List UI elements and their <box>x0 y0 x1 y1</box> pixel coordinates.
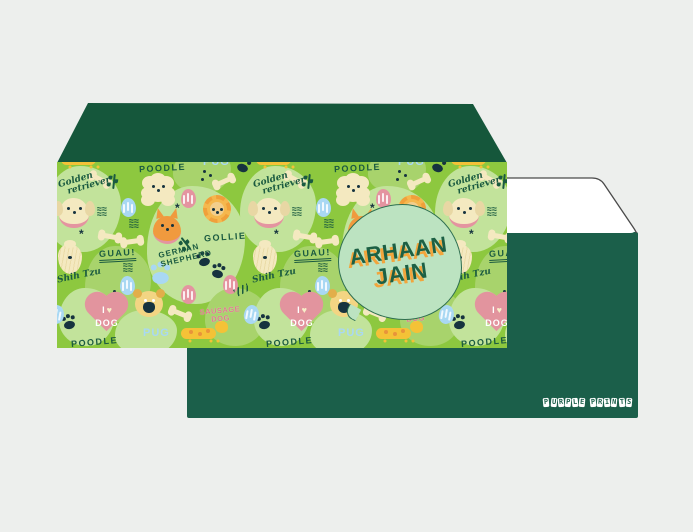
pattern-label-line: GUAU! <box>294 247 332 263</box>
pattern-paw <box>152 272 169 284</box>
brand-word: PURPLE <box>543 398 585 407</box>
name-line-2: JAIN <box>374 259 429 288</box>
pattern-heart: I♥DOG <box>86 293 128 331</box>
i-love-dog-label: I♥DOG <box>476 293 507 328</box>
dog-pug-face <box>144 299 147 302</box>
pattern-guau-guau: GUAU! <box>99 247 137 263</box>
front-envelope-flap <box>57 103 507 163</box>
dog-pug-face <box>339 299 342 302</box>
brand-letter-tile: U <box>550 398 557 408</box>
pattern-dog-poodle <box>340 178 366 202</box>
pattern-guau-guau: GUAU! <box>294 247 332 263</box>
brand-letter-tile: N <box>611 398 618 408</box>
pattern-waves <box>292 207 302 218</box>
dog-golden-face <box>268 211 271 214</box>
dog-shihtzu-face <box>263 256 267 259</box>
pattern-label-line: PUG <box>203 162 230 168</box>
heart-glyph: ♥ <box>302 305 307 315</box>
pattern-heart: I♥DOG <box>476 293 507 331</box>
recipient-name: ARHAAN JAIN <box>332 197 469 327</box>
pattern-dog-collie <box>203 195 231 223</box>
pattern-paw <box>236 162 249 173</box>
brand-letter-tile: I <box>604 398 611 408</box>
pattern-dog-poodle <box>145 178 171 202</box>
dog-collie-face <box>210 202 224 216</box>
brand-letter-tile: E <box>579 398 586 408</box>
pattern-dog-shihtzu <box>253 244 277 274</box>
pattern-pug-txt-pug: PUG <box>143 327 170 339</box>
pattern-bone <box>171 308 190 319</box>
front-envelope-body: PUGGoldenretrieverPOODLEGOLLIEGERMANSHEP… <box>57 162 507 348</box>
pattern-dog-golden <box>59 198 89 228</box>
pattern-coral <box>181 285 196 304</box>
back-flap-paper <box>500 178 634 233</box>
pattern-star <box>469 230 474 238</box>
brand-letter-tile: S <box>625 398 632 408</box>
pattern-label-line: PUG <box>143 327 170 339</box>
name-badge: ARHAAN JAIN <box>338 204 462 320</box>
dog-poodle-face <box>352 189 355 192</box>
pattern-bone <box>296 232 315 240</box>
pattern-bone <box>101 232 120 240</box>
pattern-waves <box>318 263 328 274</box>
heart-glyph: ♥ <box>497 305 502 315</box>
pattern-star <box>274 230 279 238</box>
dog-shepherd-face <box>166 228 169 231</box>
pattern-pug-txt-pug: PUG <box>398 162 425 168</box>
brand-letter-tile: P <box>565 398 572 408</box>
pattern-waves <box>129 219 139 230</box>
dog-poodle-face <box>157 189 160 192</box>
pattern-paw <box>431 162 444 173</box>
brand-letter-tile: P <box>589 398 596 408</box>
pattern-label-line: PUG <box>398 162 425 168</box>
pattern-dog-pug <box>135 291 163 317</box>
pattern-coral <box>181 189 196 208</box>
brand-letter-tile: R <box>557 398 564 408</box>
dog-golden-face <box>73 211 76 214</box>
pattern-dog-shihtzu <box>58 244 82 274</box>
pattern-pug-txt-pug: PUG <box>338 327 365 339</box>
dog-golden-face <box>463 211 466 214</box>
dog-sausage-face <box>189 330 193 334</box>
pattern-waves <box>487 207 497 218</box>
dog-shihtzu-face <box>68 256 72 259</box>
heart-glyph: ♥ <box>107 305 112 315</box>
pattern-pug-txt-pug: PUG <box>203 162 230 168</box>
pattern-dots <box>398 170 401 173</box>
pattern-dog-golden <box>254 198 284 228</box>
pattern-coral <box>121 198 136 217</box>
pattern-coral <box>316 198 331 217</box>
pattern-waves <box>123 263 133 274</box>
back-envelope-flap <box>498 170 646 238</box>
pattern-bone <box>123 238 142 245</box>
brand-letter-tile: R <box>597 398 604 408</box>
pattern-star <box>79 230 84 238</box>
pattern-label-line: GUAU! <box>489 247 507 263</box>
pattern-heart: I♥DOG <box>281 293 323 331</box>
pattern-guau-guau: GUAU! <box>489 247 507 263</box>
brand-word: PRINTS <box>590 398 632 407</box>
pattern-waves <box>97 207 107 218</box>
pattern-bone <box>318 238 337 245</box>
brand-letter-tile: P <box>543 398 550 408</box>
product-image: PURPLEPRINTS PUGGoldenretrieverPOODLEGOL… <box>0 0 693 532</box>
dog-sausage-face <box>384 330 388 334</box>
i-love-dog-label: I♥DOG <box>281 293 323 328</box>
pattern-label-line: GUAU! <box>99 247 137 263</box>
i-love-dog-label: I♥DOG <box>86 293 128 328</box>
pattern-dog-shepherd <box>153 216 181 244</box>
pattern-dots <box>203 170 206 173</box>
pattern-sausage-txt-sausage: SAUSAGEDOG <box>199 305 241 325</box>
brand-letter-tile: T <box>618 398 625 408</box>
pattern-label-line: PUG <box>338 327 365 339</box>
brand-logo: PURPLEPRINTS <box>543 398 632 407</box>
